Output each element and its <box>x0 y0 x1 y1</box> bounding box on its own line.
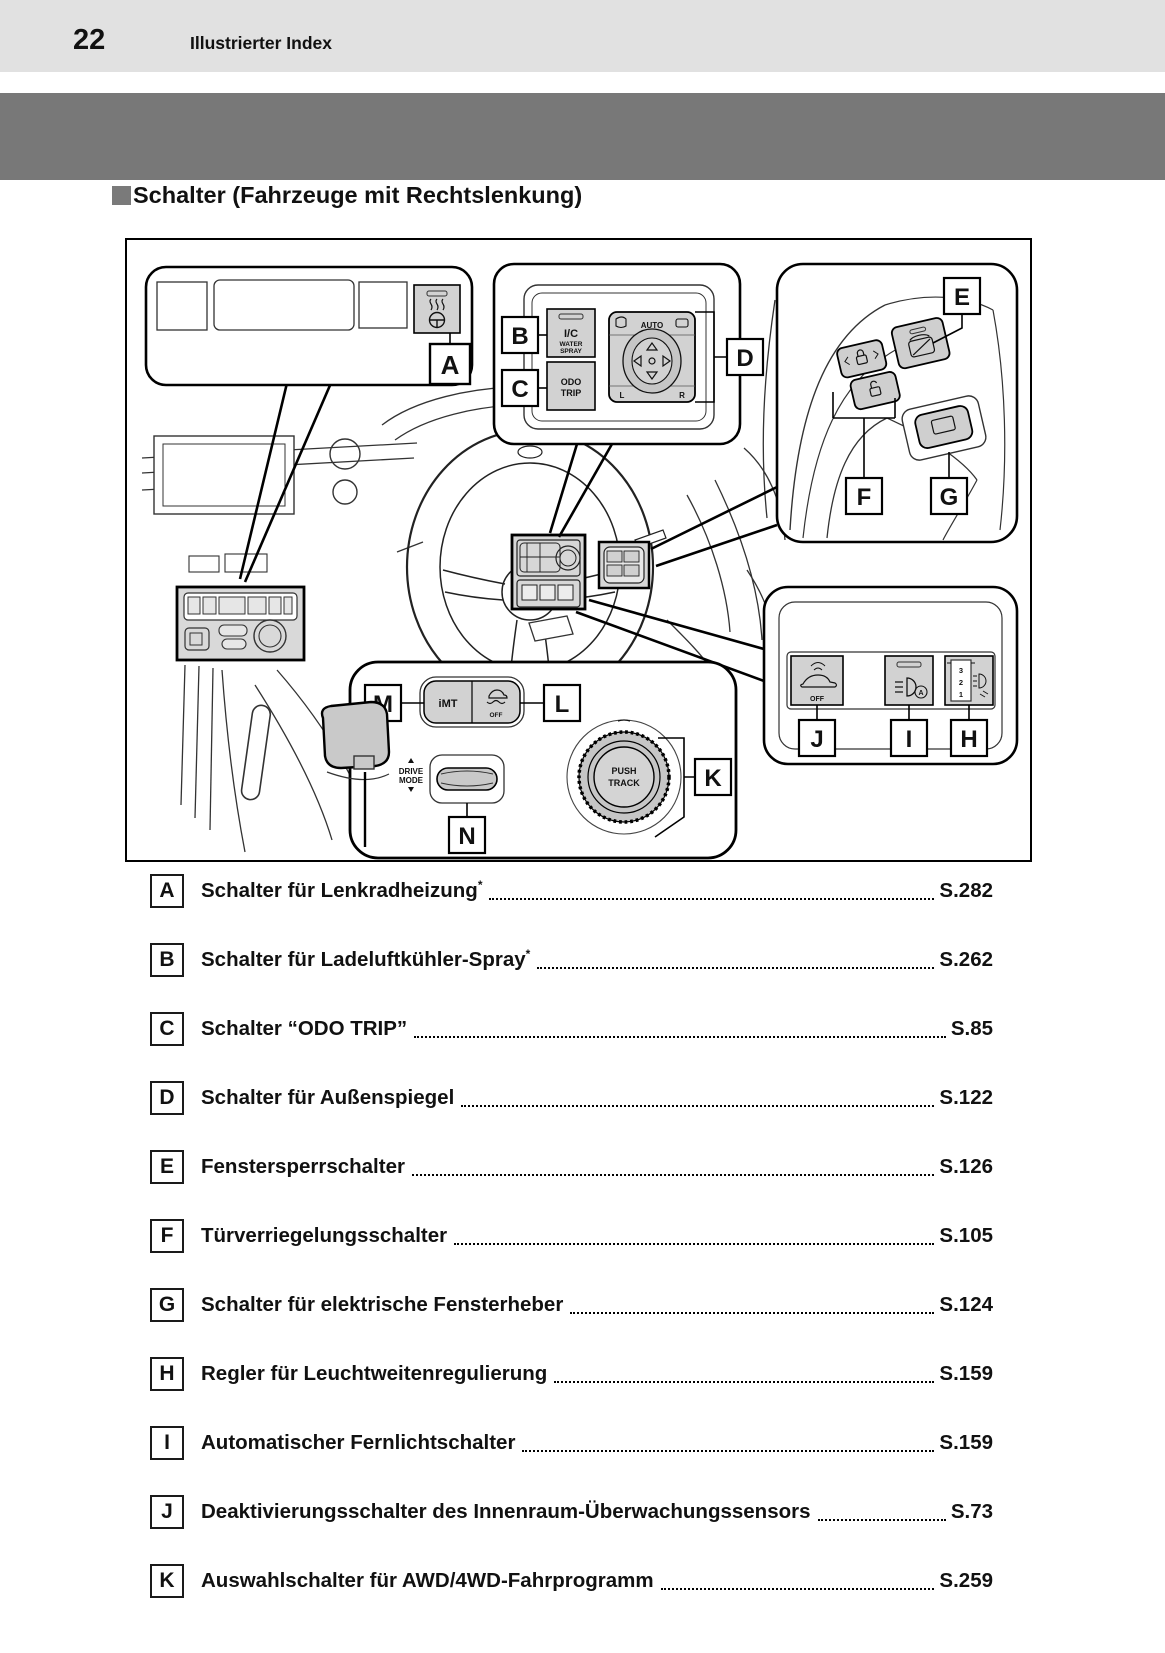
square-bullet-icon <box>112 186 131 205</box>
index-label: Türverriegelungsschalter <box>201 1224 447 1248</box>
index-row: A Schalter für Lenkradheizung* S.282 <box>150 872 993 909</box>
index-row: I Automatischer Fernlichtschalter S.159 <box>150 1424 993 1461</box>
index-letter-box: H <box>150 1357 184 1391</box>
door-switch-panel-highlight <box>599 542 649 588</box>
callout-panel-jih: OFF A 3 2 1 <box>764 587 1017 764</box>
index-label: Schalter für Lenkradheizung* <box>201 879 482 903</box>
index-label: Deaktivierungsschalter des Innenraum-Übe… <box>201 1500 811 1524</box>
index-row: H Regler für Leuchtweitenregulierung S.1… <box>150 1355 993 1392</box>
chapter-title: Illustrierter Index <box>190 35 332 53</box>
index-letter-box: E <box>150 1150 184 1184</box>
index-row: K Auswahlschalter für AWD/4WD-Fahrprogra… <box>150 1562 993 1599</box>
index-label: Schalter für Außenspiegel <box>201 1086 454 1110</box>
index-label: Schalter für Ladeluftkühler-Spray* <box>201 948 530 972</box>
odo-trip-button: ODO TRIP <box>547 362 595 410</box>
auto-high-beam-button: A <box>885 656 933 705</box>
dotted-leader <box>570 1312 934 1314</box>
svg-text:B: B <box>511 323 528 350</box>
svg-text:OFF: OFF <box>810 696 825 703</box>
callout-panel-mlnk: iMT OFF M L DRIVE MODE <box>322 662 736 858</box>
intrusion-sensor-off-button: OFF <box>791 656 843 705</box>
index-letter-box: A <box>150 874 184 908</box>
index-page-ref: S.259 <box>939 1569 993 1593</box>
svg-text:I: I <box>906 726 913 753</box>
index-row: F Türverriegelungsschalter S.105 <box>150 1217 993 1254</box>
index-row: B Schalter für Ladeluftkühler-Spray* S.2… <box>150 941 993 978</box>
page-header: 22 Illustrierter Index <box>0 0 1165 72</box>
intercooler-spray-button: I/C WATER SPRAY <box>547 309 595 357</box>
imt-vsc-button-group: iMT OFF <box>420 677 524 727</box>
index-row: E Fenstersperrschalter S.126 <box>150 1148 993 1185</box>
svg-text:I/C: I/C <box>564 328 578 340</box>
dotted-leader <box>522 1450 934 1452</box>
svg-text:PUSH: PUSH <box>611 766 636 776</box>
svg-text:R: R <box>679 391 685 400</box>
svg-text:E: E <box>954 284 970 311</box>
svg-text:ODO: ODO <box>561 377 582 387</box>
dotted-leader <box>661 1588 935 1590</box>
svg-text:2: 2 <box>959 678 963 687</box>
index-page-ref: S.122 <box>939 1086 993 1110</box>
svg-text:1: 1 <box>959 690 963 699</box>
svg-text:H: H <box>960 726 977 753</box>
index-label: Auswahlschalter für AWD/4WD-Fahrprogramm <box>201 1569 654 1593</box>
steering-heater-button <box>414 285 460 333</box>
dotted-leader <box>454 1243 934 1245</box>
index-page-ref: S.124 <box>939 1293 993 1317</box>
switch-index-list: A Schalter für Lenkradheizung* S.282 B S… <box>150 872 993 1631</box>
section-title: Schalter (Fahrzeuge mit Rechtslenkung) <box>133 182 582 209</box>
index-page-ref: S.126 <box>939 1155 993 1179</box>
page-number: 22 <box>73 26 105 55</box>
diagram-svg: A I/C WATER SPRAY ODO TRIP AUTO <box>127 240 1030 860</box>
mirror-odo-panel-highlight <box>512 535 585 609</box>
climate-control-panel-highlight <box>177 587 304 660</box>
dotted-leader <box>489 898 934 900</box>
index-page-ref: S.159 <box>939 1362 993 1386</box>
index-page-ref: S.73 <box>951 1500 993 1524</box>
index-page-ref: S.282 <box>939 879 993 903</box>
svg-text:3: 3 <box>959 666 963 675</box>
parking-brake-lever <box>240 704 271 801</box>
callout-label-i: I <box>891 720 927 756</box>
index-letter-box: F <box>150 1219 184 1253</box>
svg-text:A: A <box>441 350 460 380</box>
svg-text:DRIVE: DRIVE <box>399 767 424 776</box>
svg-text:K: K <box>704 765 722 792</box>
index-label: Schalter “ODO TRIP” <box>201 1017 407 1041</box>
index-label: Regler für Leuchtweitenregulierung <box>201 1362 547 1386</box>
index-page-ref: S.85 <box>951 1017 993 1041</box>
svg-text:L: L <box>555 691 570 718</box>
dotted-leader <box>537 967 934 969</box>
dotted-leader <box>461 1105 934 1107</box>
section-heading: Schalter (Fahrzeuge mit Rechtslenkung) <box>112 182 582 209</box>
svg-text:TRIP: TRIP <box>561 388 582 398</box>
gray-divider-band <box>0 93 1165 180</box>
index-row: D Schalter für Außenspiegel S.122 <box>150 1079 993 1116</box>
headlight-leveling-dial: 3 2 1 <box>945 656 993 705</box>
index-row: J Deaktivierungsschalter des Innenraum-Ü… <box>150 1493 993 1530</box>
index-page-ref: S.105 <box>939 1224 993 1248</box>
dotted-leader <box>414 1036 946 1038</box>
index-label: Schalter für elektrische Fensterheber <box>201 1293 563 1317</box>
svg-text:A: A <box>918 690 923 697</box>
callout-label-h: H <box>951 720 987 756</box>
callout-label-j: J <box>799 720 835 756</box>
switch-location-diagram: A I/C WATER SPRAY ODO TRIP AUTO <box>125 238 1032 862</box>
index-page-ref: S.159 <box>939 1431 993 1455</box>
svg-text:TRACK: TRACK <box>608 778 640 788</box>
index-row: G Schalter für elektrische Fensterheber … <box>150 1286 993 1323</box>
svg-text:C: C <box>511 376 528 403</box>
index-label: Automatischer Fernlichtschalter <box>201 1431 515 1455</box>
dotted-leader <box>412 1174 934 1176</box>
svg-text:L: L <box>620 391 625 400</box>
dotted-leader <box>818 1519 946 1521</box>
index-page-ref: S.262 <box>939 948 993 972</box>
index-letter-box: G <box>150 1288 184 1322</box>
manual-page: { "header": { "page_number": "22", "titl… <box>0 0 1165 1653</box>
svg-text:F: F <box>857 484 872 511</box>
svg-text:WATER: WATER <box>560 341 583 348</box>
index-letter-box: J <box>150 1495 184 1529</box>
svg-text:N: N <box>458 823 475 850</box>
index-letter-box: K <box>150 1564 184 1598</box>
callout-panel-efg: E F G <box>777 264 1017 542</box>
index-letter-box: D <box>150 1081 184 1115</box>
callout-panel-bcd: I/C WATER SPRAY ODO TRIP AUTO <box>494 264 763 444</box>
svg-text:iMT: iMT <box>439 698 458 710</box>
index-letter-box: B <box>150 943 184 977</box>
svg-text:MODE: MODE <box>399 776 424 785</box>
callout-panel-a: A <box>146 267 472 385</box>
callout-label-n: N <box>449 817 485 853</box>
index-label: Fenstersperrschalter <box>201 1155 405 1179</box>
mirror-control-pad: AUTO L R <box>609 312 695 402</box>
callout-label-a: A <box>430 344 470 384</box>
svg-text:G: G <box>940 484 959 511</box>
svg-text:SPRAY: SPRAY <box>560 348 582 355</box>
svg-text:D: D <box>736 345 753 372</box>
index-letter-box: C <box>150 1012 184 1046</box>
svg-text:OFF: OFF <box>490 712 503 719</box>
index-row: C Schalter “ODO TRIP” S.85 <box>150 1010 993 1047</box>
svg-text:J: J <box>810 726 823 753</box>
index-letter-box: I <box>150 1426 184 1460</box>
dotted-leader <box>554 1381 934 1383</box>
